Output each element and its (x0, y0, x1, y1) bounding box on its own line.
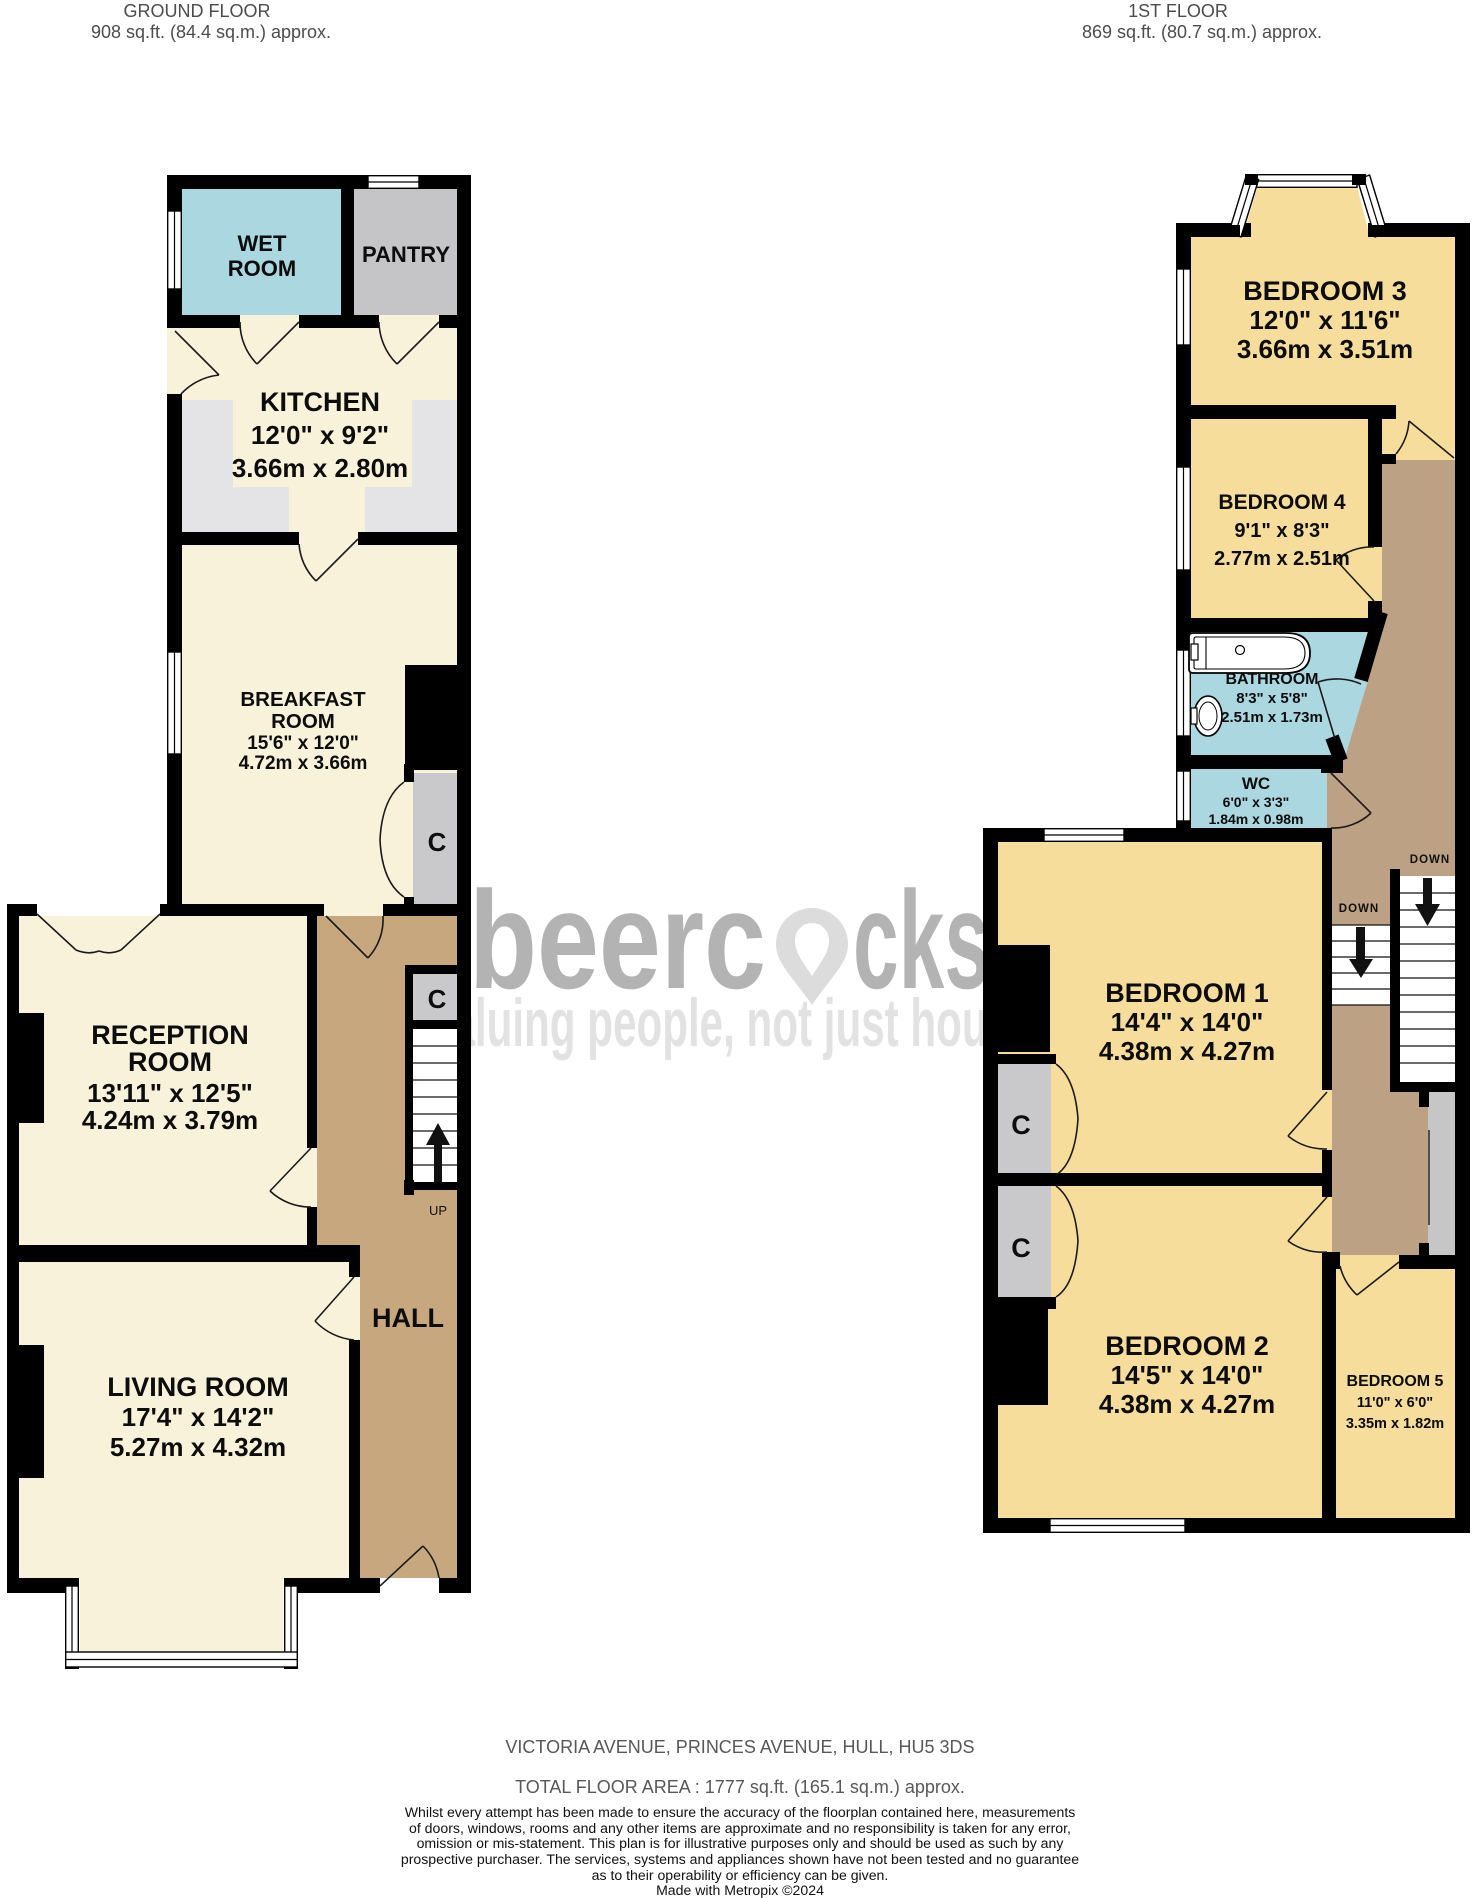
svg-text:2.77m x 2.51m: 2.77m x 2.51m (1214, 548, 1350, 570)
svg-text:BATHROOM: BATHROOM (1225, 671, 1318, 688)
svg-text:12'0" x 9'2": 12'0" x 9'2" (251, 420, 389, 450)
svg-text:4.38m x 4.27m: 4.38m x 4.27m (1099, 1036, 1275, 1066)
svg-text:C: C (1011, 1110, 1031, 1140)
svg-text:UP: UP (429, 1203, 447, 1218)
svg-text:prospective purchaser. The ser: prospective purchaser. The services, sys… (401, 1851, 1079, 1867)
svg-text:4.72m x 3.66m: 4.72m x 3.66m (239, 753, 368, 774)
svg-text:HALL: HALL (372, 1303, 444, 1333)
svg-text:DOWN: DOWN (1410, 854, 1450, 866)
svg-text:omission or mis-statement. Thi: omission or mis-statement. This plan is … (417, 1835, 1065, 1851)
svg-text:TOTAL FLOOR AREA : 1777 sq.ft.: TOTAL FLOOR AREA : 1777 sq.ft. (165.1 sq… (515, 1777, 965, 1797)
svg-text:C: C (428, 827, 447, 857)
svg-text:1ST FLOOR: 1ST FLOOR (1128, 1, 1228, 21)
svg-text:WC: WC (1242, 774, 1270, 793)
svg-text:15'6" x 12'0": 15'6" x 12'0" (247, 733, 359, 754)
svg-text:DOWN: DOWN (1339, 903, 1379, 915)
svg-text:Whilst every attempt has been: Whilst every attempt has been made to en… (405, 1804, 1076, 1820)
svg-text:12'0" x 11'6": 12'0" x 11'6" (1249, 305, 1400, 335)
svg-text:13'11" x 12'5": 13'11" x 12'5" (87, 1078, 253, 1108)
svg-text:3.66m x 3.51m: 3.66m x 3.51m (1237, 334, 1413, 364)
svg-text:BREAKFAST: BREAKFAST (240, 688, 366, 711)
svg-text:11'0" x 6'0": 11'0" x 6'0" (1357, 1395, 1433, 1411)
svg-text:LIVING ROOM: LIVING ROOM (107, 1372, 289, 1402)
svg-text:ROOM: ROOM (271, 710, 335, 733)
svg-text:valuing people, not just house: valuing people, not just houses (428, 985, 1058, 1061)
svg-text:5.27m x 4.32m: 5.27m x 4.32m (110, 1432, 286, 1462)
svg-text:PANTRY: PANTRY (362, 242, 450, 267)
svg-text:14'4" x 14'0": 14'4" x 14'0" (1111, 1007, 1264, 1037)
svg-text:8'3" x 5'8": 8'3" x 5'8" (1236, 690, 1307, 707)
svg-text:4.38m x 4.27m: 4.38m x 4.27m (1099, 1389, 1275, 1419)
svg-text:BEDROOM 5: BEDROOM 5 (1347, 1373, 1444, 1390)
svg-text:17'4" x 14'2": 17'4" x 14'2" (122, 1402, 275, 1432)
svg-text:14'5" x 14'0": 14'5" x 14'0" (1111, 1360, 1264, 1390)
svg-text:WET: WET (238, 231, 287, 256)
svg-text:1.84m x 0.98m: 1.84m x 0.98m (1209, 811, 1304, 827)
svg-text:KITCHEN: KITCHEN (260, 387, 380, 417)
svg-text:as to their operability or eff: as to their operability or efficiency ca… (592, 1867, 889, 1883)
svg-text:2.51m x 1.73m: 2.51m x 1.73m (1221, 709, 1323, 726)
svg-text:BEDROOM 2: BEDROOM 2 (1105, 1331, 1269, 1361)
svg-text:GROUND FLOOR: GROUND FLOOR (123, 1, 270, 21)
svg-text:C: C (1011, 1233, 1031, 1263)
svg-text:BEDROOM 3: BEDROOM 3 (1243, 276, 1407, 306)
svg-text:ROOM: ROOM (228, 256, 296, 281)
svg-text:of doors, windows, rooms and a: of doors, windows, rooms and any other i… (409, 1820, 1071, 1836)
svg-text:ROOM: ROOM (128, 1047, 212, 1077)
svg-text:Made with Metropix ©2024: Made with Metropix ©2024 (656, 1882, 824, 1898)
svg-text:6'0" x 3'3": 6'0" x 3'3" (1223, 794, 1290, 810)
svg-text:3.35m x 1.82m: 3.35m x 1.82m (1346, 1416, 1444, 1432)
svg-text:C: C (428, 984, 447, 1014)
svg-text:3.66m x 2.80m: 3.66m x 2.80m (232, 453, 408, 483)
svg-text:BEDROOM 1: BEDROOM 1 (1105, 978, 1269, 1008)
svg-text:4.24m x 3.79m: 4.24m x 3.79m (82, 1105, 258, 1135)
svg-text:869 sq.ft. (80.7 sq.m.) approx: 869 sq.ft. (80.7 sq.m.) approx. (1082, 22, 1322, 42)
svg-text:BEDROOM 4: BEDROOM 4 (1218, 491, 1346, 514)
svg-text:9'1" x 8'3": 9'1" x 8'3" (1234, 520, 1329, 542)
svg-text:908 sq.ft. (84.4 sq.m.) approx: 908 sq.ft. (84.4 sq.m.) approx. (91, 22, 331, 42)
svg-text:RECEPTION: RECEPTION (91, 1020, 249, 1050)
svg-text:VICTORIA AVENUE, PRINCES AVENU: VICTORIA AVENUE, PRINCES AVENUE, HULL, H… (505, 1737, 974, 1757)
